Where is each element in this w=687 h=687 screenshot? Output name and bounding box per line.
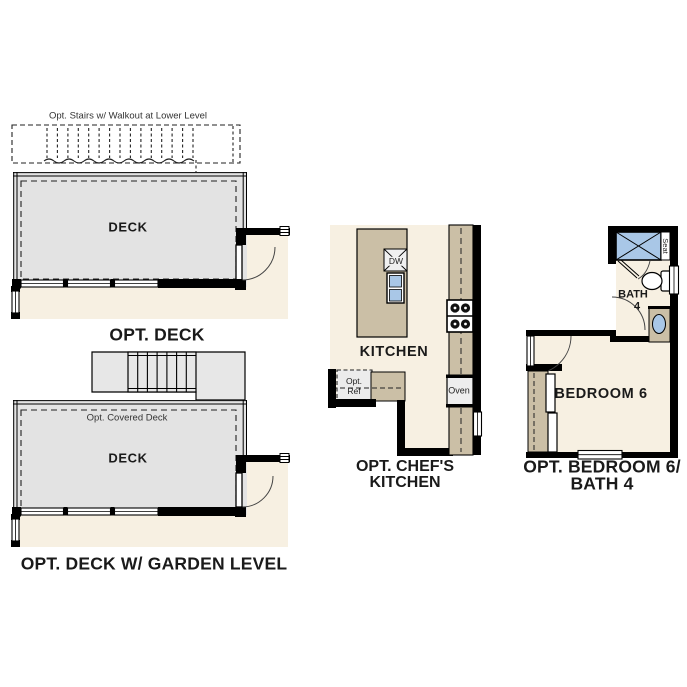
opt-stairs-note: Opt. Stairs w/ Walkout at Lower Level	[49, 111, 207, 121]
kitchen-island	[357, 229, 407, 337]
bedroom-room-label: BEDROOM 6	[554, 387, 647, 402]
interior-floor	[19, 287, 242, 319]
dishwasher-label: DW	[388, 257, 404, 266]
closet-door	[548, 413, 557, 452]
side-window	[527, 336, 534, 366]
opt-deck-caption: OPT. DECK	[109, 326, 204, 344]
opt-deck-panel	[11, 125, 290, 319]
opt-ref-label-line1: Opt.	[346, 377, 362, 386]
cooktop	[447, 300, 473, 332]
opt-ref-label-line2: Ref	[347, 387, 360, 396]
interior-floor	[242, 461, 288, 547]
deck1-room-label: DECK	[108, 221, 147, 234]
opt-deck-garden-panel	[11, 352, 290, 547]
staircase	[92, 352, 245, 400]
bath-vanity	[648, 306, 671, 342]
opt-chefs-kitchen-panel	[328, 225, 482, 456]
wall-window-icon	[280, 454, 289, 463]
chefs-kitchen-caption-line2: KITCHEN	[369, 475, 440, 491]
deck2-room-label: DECK	[108, 452, 147, 465]
counter	[371, 372, 405, 401]
interior-floor	[242, 234, 288, 319]
interior-floor	[19, 515, 242, 547]
covered-deck-note: Opt. Covered Deck	[87, 413, 168, 423]
kitchen-sink	[387, 273, 404, 303]
closet	[528, 371, 557, 452]
chefs-kitchen-caption-line1: OPT. CHEF'S	[356, 459, 454, 475]
deck-windows	[12, 507, 242, 517]
side-window	[11, 286, 20, 319]
oven-label: Oven	[448, 387, 470, 396]
opt-deck-garden-caption: OPT. DECK W/ GARDEN LEVEL	[21, 555, 288, 573]
opt-stairs-dashed	[12, 125, 240, 176]
floorplan-drawing	[0, 0, 687, 687]
bath-room-label-line2: 4	[634, 302, 640, 313]
opt-bedroom6-bath4-panel	[526, 226, 679, 459]
wall-window	[670, 266, 679, 294]
shower-seat-label: Seat	[661, 238, 669, 253]
kitchen-room-label: KITCHEN	[360, 345, 429, 360]
floorplan-canvas: Opt. Stairs w/ Walkout at Lower Level DE…	[0, 0, 687, 687]
deck-windows	[12, 279, 242, 289]
wall-window	[474, 412, 482, 436]
wall-window-icon	[280, 227, 289, 236]
side-window	[11, 514, 20, 547]
bath-room-label-line1: BATH	[618, 290, 648, 301]
bedroom-caption-line2: BATH 4	[570, 475, 633, 493]
